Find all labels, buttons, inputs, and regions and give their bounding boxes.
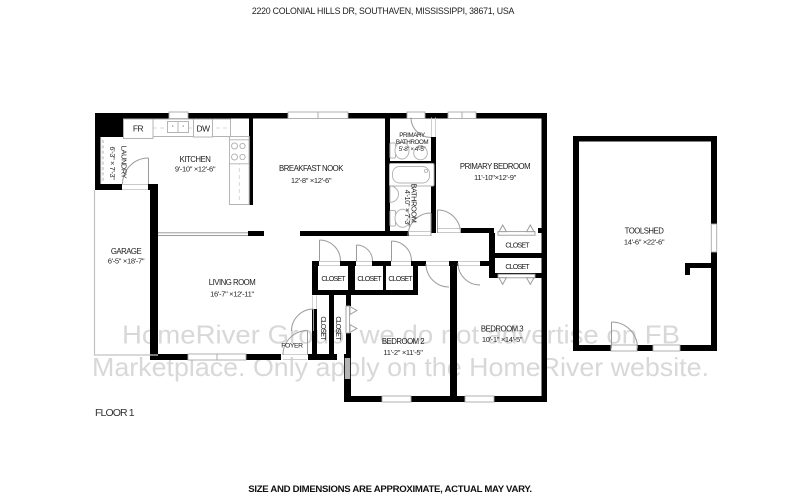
svg-text:10'-1" ×14'-5": 10'-1" ×14'-5" [482,335,523,344]
svg-text:5'-8" × 4'-5": 5'-8" × 4'-5" [399,146,426,153]
svg-text:9'-10" ×12'-6": 9'-10" ×12'-6" [175,165,216,174]
svg-text:4'-10" × 7'-3": 4'-10" × 7'-3" [403,190,412,227]
svg-text:16'-7" ×12'-11": 16'-7" ×12'-11" [210,290,254,299]
svg-text:6'-5" ×18'-7": 6'-5" ×18'-7" [108,257,145,266]
svg-text:CLOSET: CLOSET [334,316,341,341]
svg-text:CLOSET: CLOSET [357,274,382,283]
svg-text:12'-8" ×12'-6": 12'-8" ×12'-6" [291,176,332,185]
svg-text:TOOLSHED: TOOLSHED [625,227,665,236]
svg-text:BEDROOM 2: BEDROOM 2 [382,337,424,346]
svg-text:PRIMARY: PRIMARY [399,132,426,139]
svg-text:CLOSET: CLOSET [505,241,530,250]
svg-text:14'-6" ×22'-6": 14'-6" ×22'-6" [624,238,665,247]
svg-text:FLOOR 1: FLOOR 1 [95,407,135,419]
svg-text:6'-3" × 7'-3": 6'-3" × 7'-3" [108,147,117,181]
svg-text:CLOSET: CLOSET [388,274,413,283]
svg-text:FOYER: FOYER [281,343,303,350]
svg-text:LIVING ROOM: LIVING ROOM [209,278,256,287]
svg-text:11'-10"×12'-9": 11'-10"×12'-9" [474,173,517,182]
svg-text:DW: DW [197,124,211,134]
svg-text:GARAGE: GARAGE [111,247,142,256]
svg-text:CLOSET: CLOSET [319,316,326,341]
svg-text:SIZE AND DIMENSIONS ARE APPROX: SIZE AND DIMENSIONS ARE APPROXIMATE, ACT… [248,484,532,495]
svg-text:PRIMARY BEDROOM: PRIMARY BEDROOM [460,162,530,171]
svg-text:BREAKFAST NOOK: BREAKFAST NOOK [279,164,344,173]
svg-text:11'-2" ×11'-5": 11'-2" ×11'-5" [383,348,423,357]
svg-text:FR: FR [133,124,144,134]
svg-text:BEDROOM 3: BEDROOM 3 [481,325,523,334]
svg-text:LAUNDRY: LAUNDRY [120,146,129,179]
svg-text:KITCHEN: KITCHEN [180,155,211,164]
svg-text:CLOSET: CLOSET [505,262,530,271]
svg-text:2220 COLONIAL HILLS DR, SOUTHA: 2220 COLONIAL HILLS DR, SOUTHAVEN, MISSI… [252,6,515,16]
svg-text:CLOSET: CLOSET [321,274,346,283]
